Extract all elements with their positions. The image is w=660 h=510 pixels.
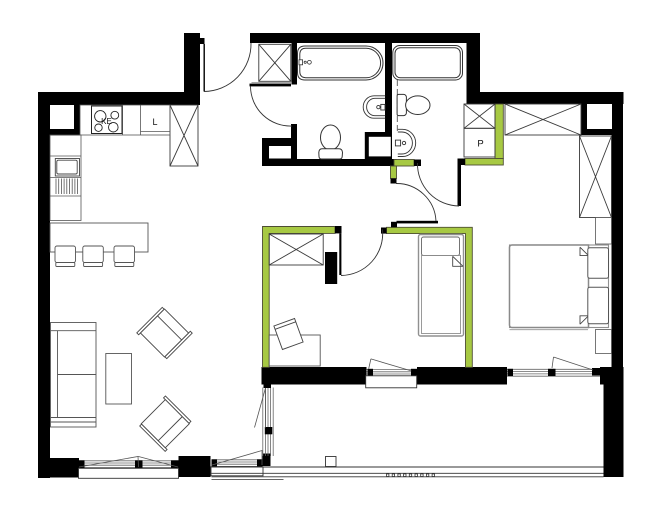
svg-text:P: P (477, 138, 483, 149)
svg-text:KE: KE (101, 117, 112, 126)
svg-text:L: L (152, 117, 157, 127)
